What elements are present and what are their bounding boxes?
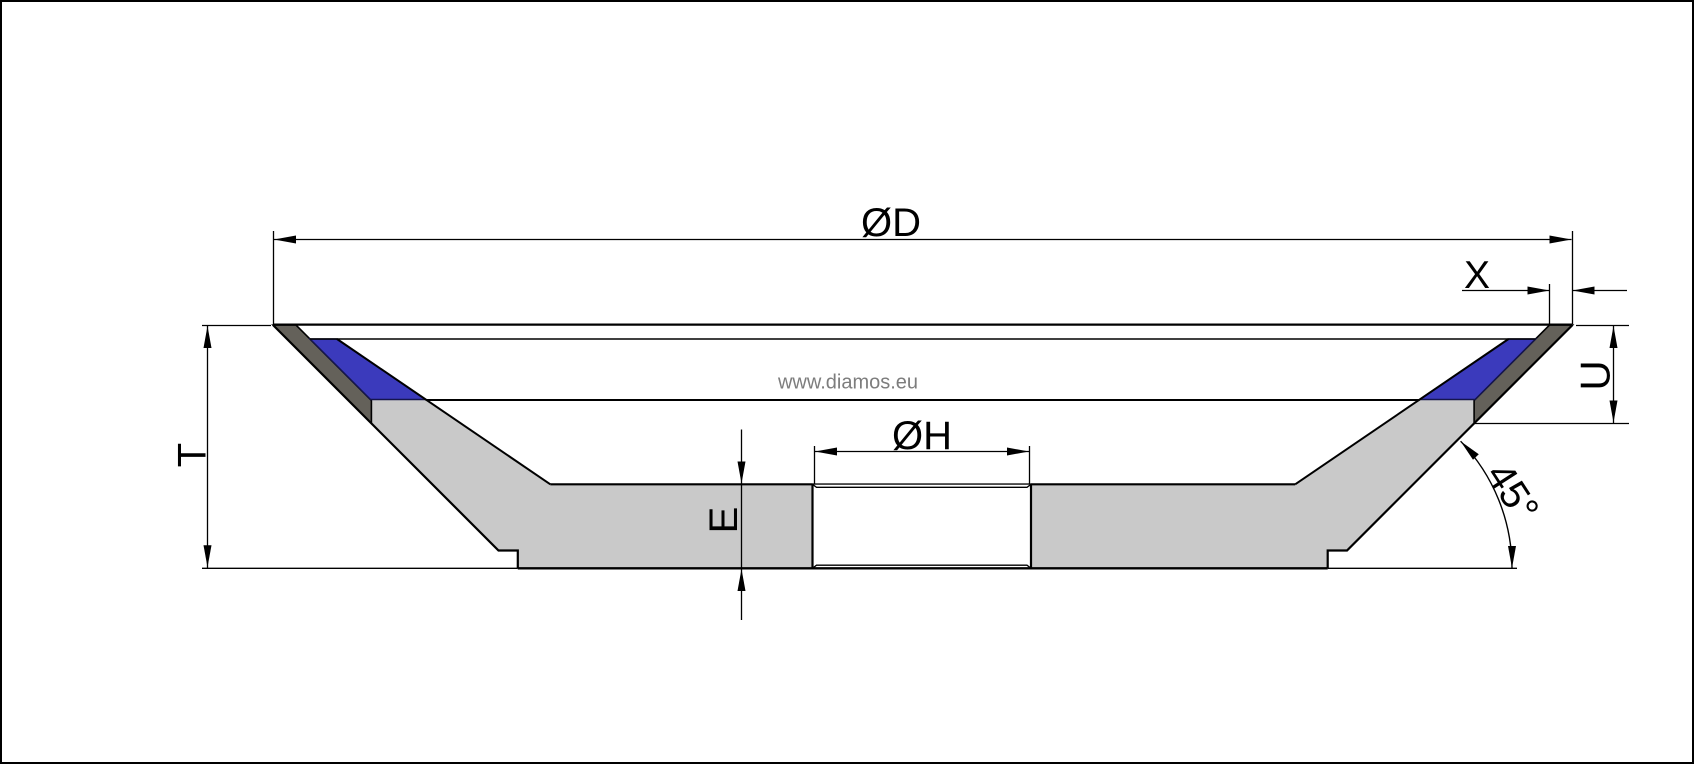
svg-text:X: X [1464, 254, 1490, 297]
svg-text:ØD: ØD [861, 201, 921, 245]
svg-text:U: U [1572, 360, 1619, 390]
svg-text:ØH: ØH [892, 414, 952, 458]
svg-text:www.diamos.eu: www.diamos.eu [777, 372, 918, 394]
svg-text:E: E [702, 507, 746, 534]
svg-text:T: T [171, 443, 215, 467]
